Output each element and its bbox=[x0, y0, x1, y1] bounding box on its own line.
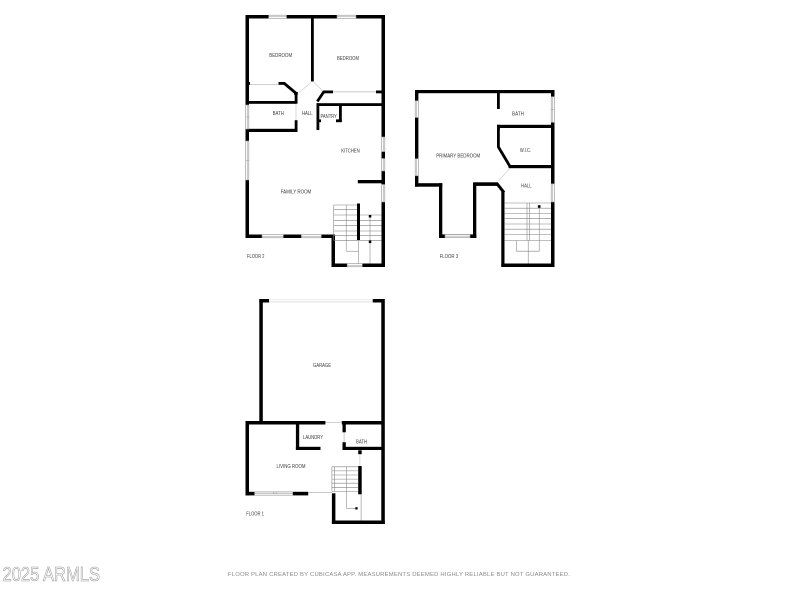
svg-text:BEDROOM: BEDROOM bbox=[337, 56, 359, 62]
svg-text:FLOOR 3: FLOOR 3 bbox=[440, 254, 459, 260]
svg-text:BATH: BATH bbox=[356, 440, 367, 446]
svg-text:GARAGE: GARAGE bbox=[313, 363, 331, 369]
svg-text:W.I.C.: W.I.C. bbox=[520, 148, 531, 154]
svg-text:PRIMARY BEDROOM: PRIMARY BEDROOM bbox=[436, 154, 480, 160]
svg-text:PANTRY: PANTRY bbox=[320, 114, 337, 120]
svg-text:FAMILY ROOM: FAMILY ROOM bbox=[281, 190, 312, 196]
svg-text:HALL: HALL bbox=[521, 184, 532, 190]
svg-text:BATH: BATH bbox=[273, 111, 284, 117]
svg-text:FLOOR 1: FLOOR 1 bbox=[246, 512, 264, 518]
svg-text:FLOOR PLAN CREATED BY CUBICASA: FLOOR PLAN CREATED BY CUBICASA APP. MEAS… bbox=[228, 572, 570, 578]
svg-text:2025 ARMLS: 2025 ARMLS bbox=[3, 563, 101, 586]
svg-text:FLOOR 2: FLOOR 2 bbox=[247, 254, 265, 260]
svg-text:HALL: HALL bbox=[302, 111, 313, 117]
svg-text:BATH: BATH bbox=[512, 112, 524, 118]
svg-text:BEDROOM: BEDROOM bbox=[269, 53, 292, 59]
svg-text:LIVING ROOM: LIVING ROOM bbox=[277, 464, 306, 470]
svg-text:KITCHEN: KITCHEN bbox=[341, 148, 360, 154]
svg-text:LAUNDRY: LAUNDRY bbox=[303, 435, 323, 441]
